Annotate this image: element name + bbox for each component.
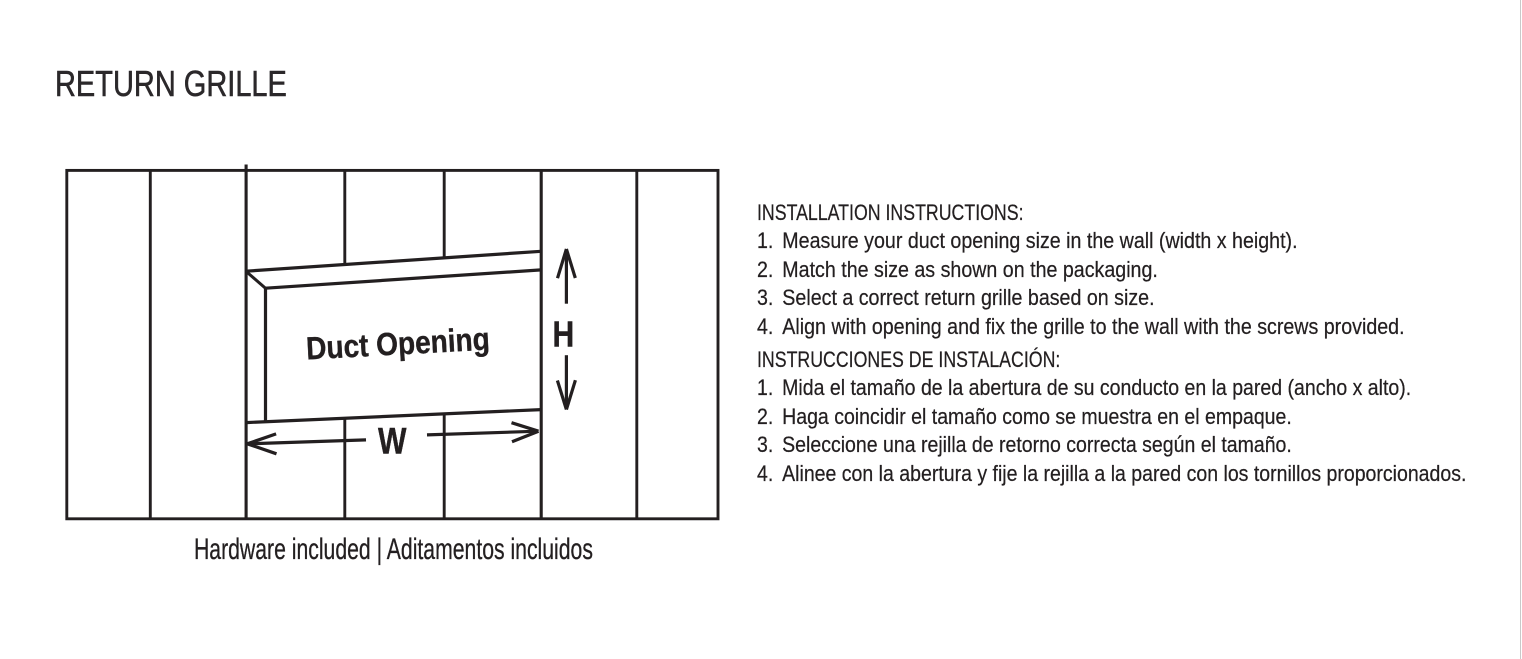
svg-text:Duct Opening: Duct Opening bbox=[305, 322, 490, 367]
svg-text:H: H bbox=[552, 315, 574, 355]
svg-text:W: W bbox=[378, 420, 407, 462]
